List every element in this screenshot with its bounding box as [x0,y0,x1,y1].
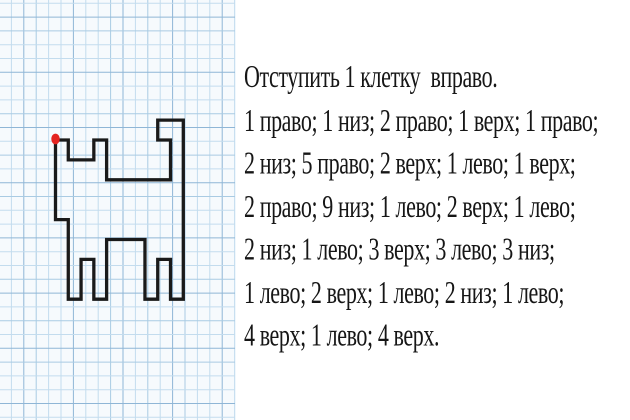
instruction-line-1: Отступить 1 клетку вправо. [244,55,598,98]
grid-lines [0,0,235,420]
instructions-block: Отступить 1 клетку вправо. 1 право; 1 ни… [244,55,598,356]
worksheet-page: Отступить 1 клетку вправо. 1 право; 1 ни… [0,0,630,420]
instruction-line-3: 2 низ; 5 право; 2 верх; 1 лево; 1 верх; [244,141,598,184]
grid-figure-svg [0,0,236,420]
instruction-line-7: 4 верх; 1 лево; 4 верх. [244,313,598,356]
grid-paper-panel [0,0,236,420]
instruction-line-5: 2 низ; 1 лево; 3 верх; 3 лево; 3 низ; [244,227,598,270]
cat-figure-outline [56,120,184,299]
start-point-dot [51,134,59,145]
instruction-line-2: 1 право; 1 низ; 2 право; 1 верх; 1 право… [244,98,598,141]
instruction-line-6: 1 лево; 2 верх; 1 лево; 2 низ; 1 лево; [244,270,598,313]
instruction-line-4: 2 право; 9 низ; 1 лево; 2 верх; 1 лево; [244,184,598,227]
